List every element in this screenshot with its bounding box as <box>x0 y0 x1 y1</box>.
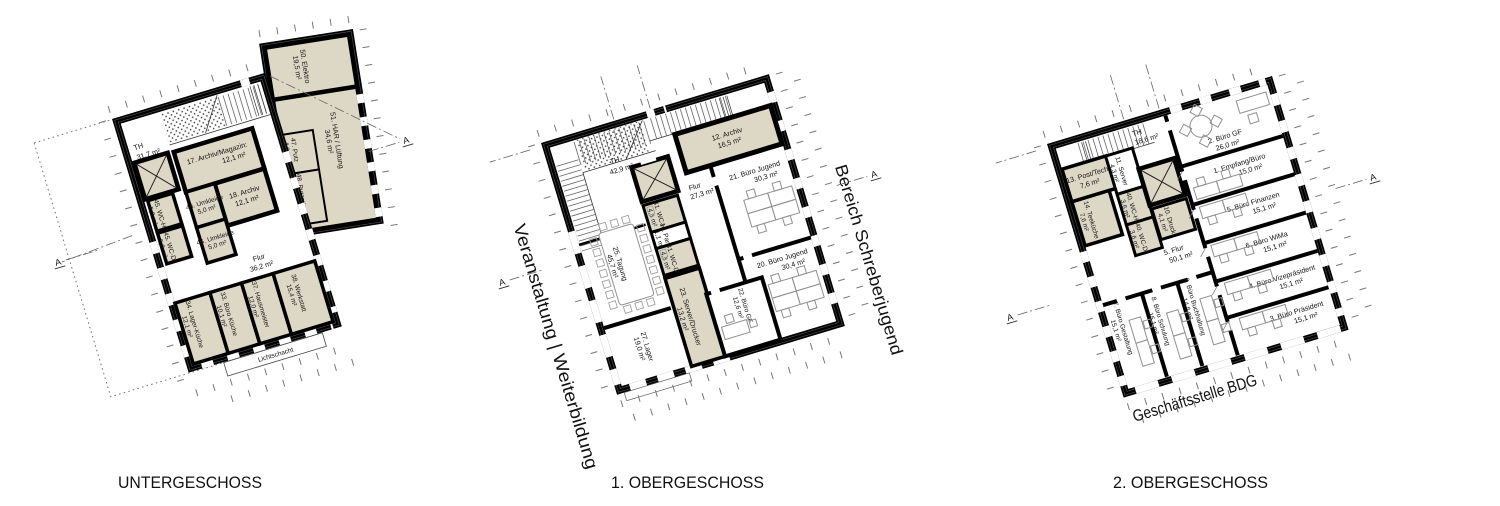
svg-text:A: A <box>870 169 879 180</box>
svg-text:2. OBERGESCHOSS: 2. OBERGESCHOSS <box>1113 473 1268 492</box>
svg-text:Bereich Schreberjugend: Bereich Schreberjugend <box>831 162 906 357</box>
svg-text:A: A <box>402 135 411 146</box>
svg-text:1. OBERGESCHOSS: 1. OBERGESCHOSS <box>611 473 764 492</box>
svg-text:A: A <box>54 257 63 268</box>
svg-text:A: A <box>1369 172 1378 183</box>
svg-text:UNTERGESCHOSS: UNTERGESCHOSS <box>118 473 262 492</box>
svg-text:A: A <box>1006 312 1015 323</box>
svg-text:A: A <box>498 277 507 288</box>
